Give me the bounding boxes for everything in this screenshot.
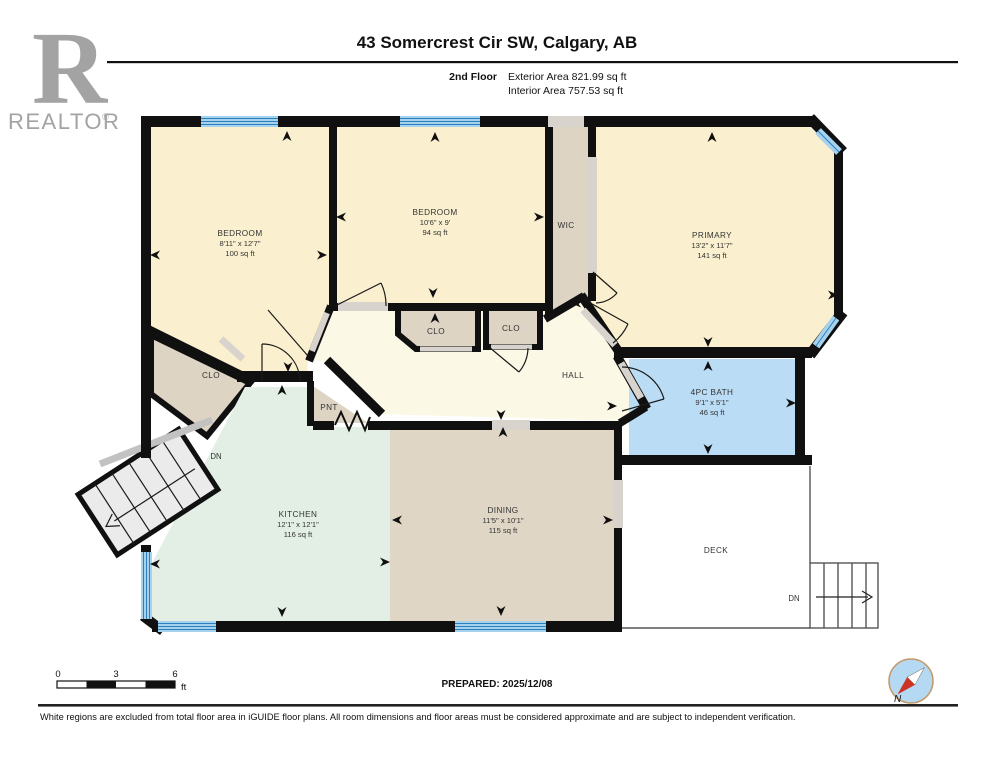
label-kitchen-dims: 12'1" x 12'1"	[277, 520, 319, 529]
label-dining-dims: 11'5" x 10'1"	[482, 516, 523, 525]
label-bath-name: 4PC BATH	[691, 388, 734, 397]
scale-3: 3	[113, 669, 118, 680]
label-bedroom-left-name: BEDROOM	[217, 229, 262, 238]
scale-0: 0	[55, 669, 60, 680]
exterior-area: Exterior Area 821.99 sq ft	[508, 71, 627, 83]
floorplan-page: 43 Somercrest Cir SW, Calgary, AB 2nd Fl…	[0, 0, 993, 768]
compass-north-label: N	[894, 694, 902, 705]
header: 43 Somercrest Cir SW, Calgary, AB 2nd Fl…	[107, 33, 958, 97]
window-bottom-kitchen-icon	[158, 621, 216, 632]
label-dining-name: DINING	[487, 506, 518, 515]
label-bedroom-left-area: 100 sq ft	[225, 249, 255, 258]
floorplan-canvas: 43 Somercrest Cir SW, Calgary, AB 2nd Fl…	[0, 0, 993, 768]
floor-label: 2nd Floor	[449, 71, 497, 83]
window-kitchen-left-icon	[141, 552, 152, 619]
label-bath-area: 46 sq ft	[700, 408, 726, 417]
window-top-mid-icon	[400, 116, 480, 127]
prepared-date: PREPARED: 2025/12/08	[442, 679, 553, 690]
scale-bar: 0 3 6 ft	[55, 669, 186, 693]
stairs-exterior	[810, 563, 878, 628]
label-primary-name: PRIMARY	[692, 231, 732, 240]
opening-wic-top	[548, 116, 584, 127]
opening-hall-dining	[492, 420, 530, 430]
label-closet-right: CLO	[502, 324, 520, 333]
scale-unit: ft	[181, 682, 187, 693]
label-pantry: PNT	[320, 403, 338, 412]
header-rule	[107, 61, 958, 63]
label-deck: DECK	[704, 546, 728, 555]
label-dn-exterior: DN	[788, 594, 799, 603]
label-closet-mid: CLO	[427, 327, 445, 336]
deck-and-exterior-stairs	[622, 466, 878, 628]
realtor-logo: R REALTOR ®	[8, 11, 120, 134]
footer-rule	[38, 704, 958, 707]
window-top-left-icon	[201, 116, 278, 127]
label-bedroom-middle-area: 94 sq ft	[423, 228, 449, 237]
opening-bedroom-middle-door	[338, 302, 388, 311]
page-title: 43 Somercrest Cir SW, Calgary, AB	[357, 33, 638, 52]
window-bottom-dining-icon	[455, 621, 546, 632]
label-dn-interior: DN	[210, 452, 221, 461]
disclaimer-text: White regions are excluded from total fl…	[40, 712, 796, 722]
label-closet-left: CLO	[202, 371, 220, 380]
opening-dining-deck	[613, 480, 623, 528]
label-hall: HALL	[562, 371, 584, 380]
label-primary-area: 141 sq ft	[697, 251, 727, 260]
interior-area: Interior Area 757.53 sq ft	[508, 85, 623, 97]
label-bedroom-left-dims: 8'11" x 12'7"	[219, 239, 260, 248]
label-bedroom-middle-name: BEDROOM	[412, 208, 457, 217]
label-bath-dims: 9'1" x 5'1"	[695, 398, 729, 407]
scale-6: 6	[172, 669, 177, 680]
registered-mark: ®	[102, 112, 109, 122]
opening-wic-right	[587, 157, 597, 273]
label-dining-area: 115 sq ft	[489, 526, 518, 535]
label-primary-dims: 13'2" x 11'7"	[691, 241, 732, 250]
label-wic: WIC	[557, 221, 574, 230]
label-kitchen-name: KITCHEN	[279, 510, 318, 519]
label-bedroom-middle-dims: 10'6" x 9'	[420, 218, 451, 227]
compass-icon: N	[889, 659, 933, 705]
label-kitchen-area: 116 sq ft	[284, 530, 313, 539]
